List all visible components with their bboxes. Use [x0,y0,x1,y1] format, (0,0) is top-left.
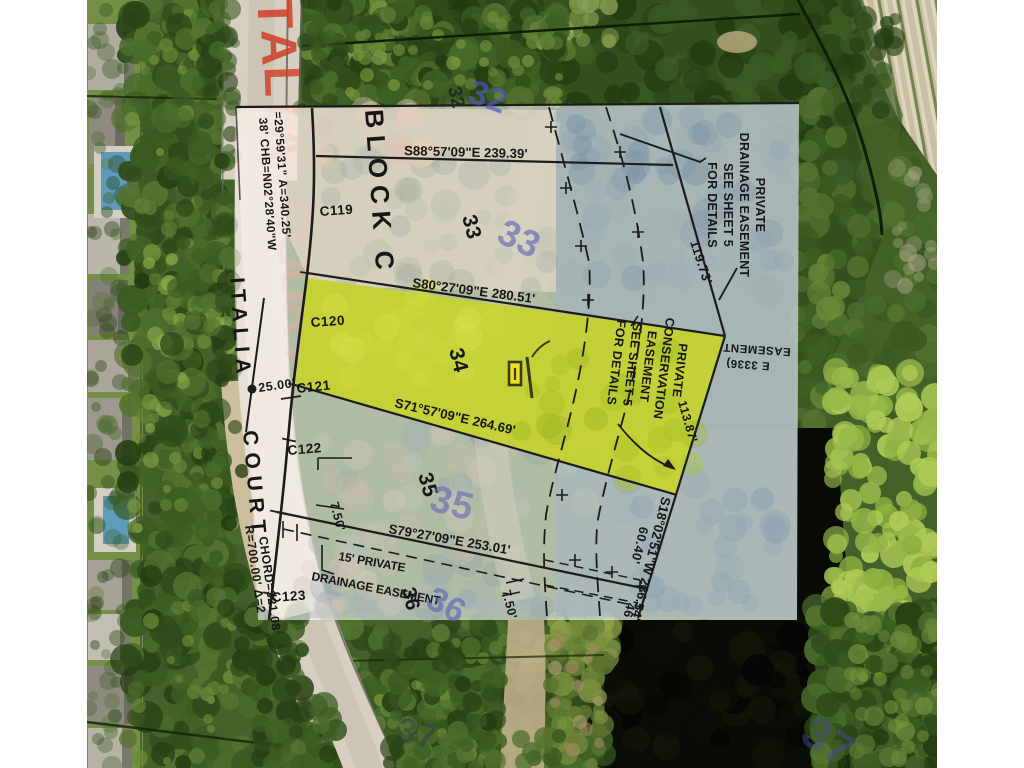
svg-text:SEE SHEET 5: SEE SHEET 5 [721,163,735,247]
svg-text:C120: C120 [310,313,345,330]
svg-text:DRAINAGE EASEMENT: DRAINAGE EASEMENT [737,133,751,278]
svg-text:FOR DETAILS: FOR DETAILS [705,162,719,248]
svg-text:C119: C119 [319,202,353,219]
svg-text:T: T [246,0,303,30]
svg-text:C122: C122 [287,440,322,458]
svg-text:A: A [250,28,307,66]
svg-text:PRIVATE: PRIVATE [753,178,767,232]
svg-text:C123: C123 [271,588,306,605]
svg-text:L: L [253,65,310,97]
